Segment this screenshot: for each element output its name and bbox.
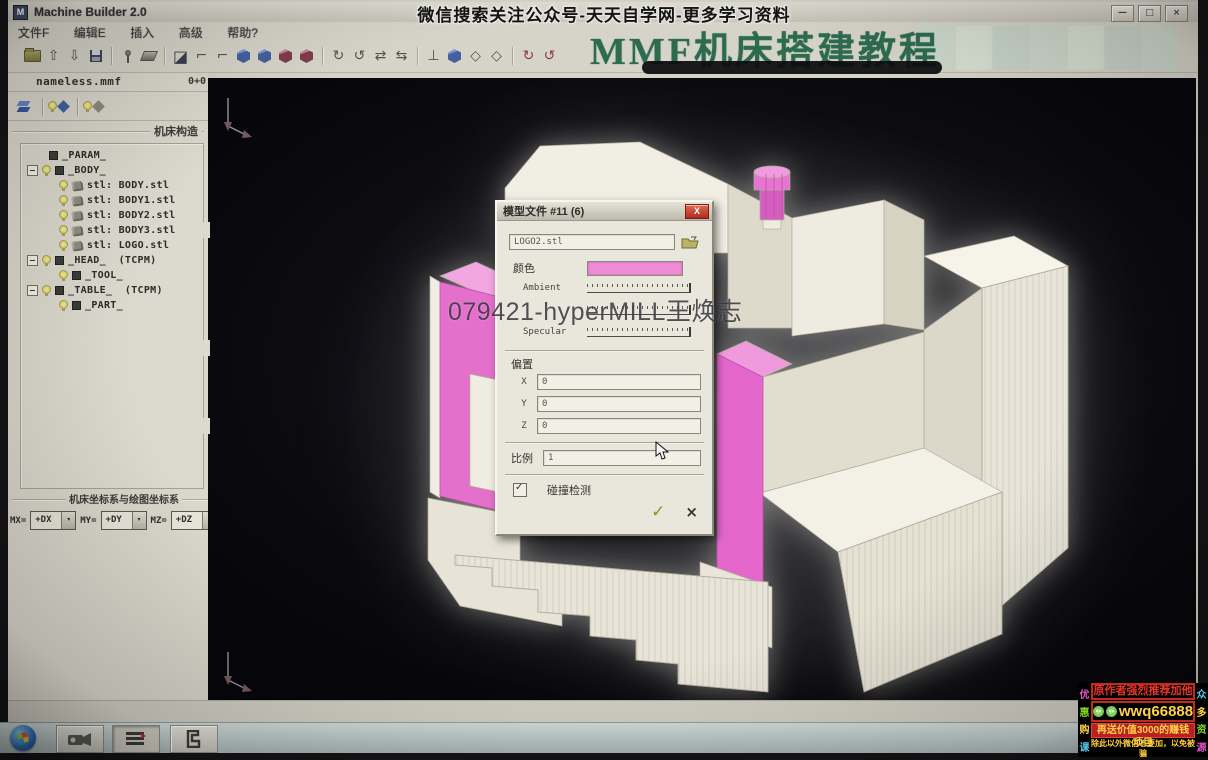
author-watermark: 079421-hyperMILL王焕志 [448, 292, 742, 328]
coords-group-label: 机床坐标系与绘图坐标系 [66, 491, 182, 506]
offset-y-label: Y [511, 399, 537, 409]
start-button[interactable] [10, 725, 36, 751]
blue-diamond-icon[interactable] [57, 100, 70, 113]
ad-wechat-id: wwq66888 [1119, 703, 1193, 720]
export-down-icon[interactable]: ⇩ [65, 47, 84, 66]
move-cube-x-icon[interactable] [234, 47, 253, 66]
mx-dropdown[interactable]: +DX ▾ [30, 511, 76, 530]
tree-item-label: _HEAD_ (TCPM) [68, 255, 157, 266]
tree-item-table[interactable]: _TABLE_ (TCPM) [21, 283, 203, 298]
save-icon[interactable] [86, 47, 105, 66]
file-row: nameless.mmf 0+0 [8, 73, 208, 92]
panel-edge-tab [197, 418, 210, 434]
ad-wechat-row: wwq66888 [1091, 701, 1195, 722]
visibility-bulb-icon[interactable] [59, 300, 68, 311]
chevron-down-icon[interactable]: ▾ [61, 512, 75, 529]
panel-toolbar-separator [77, 98, 78, 116]
offset-z-input[interactable]: 0 [537, 418, 701, 434]
wechat-icon [1106, 706, 1117, 717]
toolbar-separator [111, 47, 112, 65]
specular-label: Specular [523, 327, 587, 337]
node-icon [72, 301, 81, 310]
tree-item-stl[interactable]: stl: LOGO.stl [21, 238, 203, 253]
scale-input[interactable]: 1 [543, 450, 701, 466]
wechat-icon [1093, 706, 1104, 717]
wire-cube-b-icon[interactable]: ◇ [487, 47, 506, 66]
tree-item-tool[interactable]: _TOOL_ [21, 268, 203, 283]
dialog-close-button[interactable]: X [685, 204, 709, 219]
move-cube-z-icon[interactable] [276, 47, 295, 66]
current-file-name: nameless.mmf [36, 75, 121, 88]
taskbar-recorder-button[interactable] [56, 725, 104, 753]
move-cube-y-icon[interactable] [255, 47, 274, 66]
color-swatch[interactable] [587, 261, 683, 276]
panel-toolbar [8, 93, 208, 121]
layers-icon[interactable] [18, 100, 31, 113]
ad-line-1: 原作者强烈推荐加他 [1091, 683, 1195, 700]
offset-z-label: Z [511, 421, 537, 431]
offset-x-label: X [511, 377, 537, 387]
window-bottom-strip [8, 700, 1198, 723]
panel-edge-tab [197, 340, 210, 356]
windows-logo-icon [17, 732, 30, 745]
machine-structure-label: 机床构造 [150, 123, 202, 139]
tree-item-label: _PARAM_ [62, 150, 106, 161]
toolbar-separator [417, 47, 418, 65]
panel-toolbar-separator [42, 98, 43, 116]
ad-right-vertical-text: 众 多 资 源 [1195, 683, 1208, 757]
chevron-down-icon[interactable]: ▾ [132, 512, 146, 529]
open-folder-icon[interactable] [681, 235, 700, 250]
swap-y-icon[interactable]: ⇆ [392, 47, 411, 66]
ad-line-4: 除此以外微信不要加，以免被骗 [1091, 739, 1195, 759]
top-banner-watermark: 微信搜索关注公众号-天天自学网-更多学习资料 [0, 1, 1208, 26]
wechat-ad-overlay: 优 惠 购 课 原作者强烈推荐加他 wwq66888 再送价值3000的赚钱项目… [1078, 683, 1208, 757]
import-up-icon[interactable]: ⇧ [44, 47, 63, 66]
scale-label: 比例 [511, 450, 543, 466]
panel-edge-tab [197, 222, 210, 238]
perpendicular-icon[interactable]: ⊥ [424, 47, 443, 66]
axis-rotate-b-icon[interactable]: ↺ [540, 47, 559, 66]
tree-item-param[interactable]: _PARAM_ [21, 148, 203, 163]
offset-label: 偏置 [511, 356, 533, 372]
file-meta: 0+0 [188, 76, 206, 87]
tree-item-label: _BODY_ [68, 165, 106, 176]
visibility-bulb-icon[interactable] [59, 270, 68, 281]
collision-checkbox[interactable] [513, 483, 527, 497]
move-cube-w-icon[interactable] [297, 47, 316, 66]
my-label: MY= [80, 516, 96, 526]
mesh-icon [71, 210, 83, 221]
visibility-bulb-icon[interactable] [59, 225, 68, 236]
color-label: 颜色 [513, 260, 587, 276]
visibility-bulb-icon[interactable] [59, 210, 68, 221]
mz-label: MZ= [151, 516, 167, 526]
axis-triad-top-icon [222, 96, 258, 138]
tree-item-head[interactable]: _HEAD_ (TCPM) [21, 253, 203, 268]
toolbar-separator [164, 47, 165, 65]
mx-label: MX= [10, 516, 26, 526]
hide-all-bulb-icon[interactable] [83, 101, 92, 112]
axis-triad-bottom-icon [222, 650, 258, 692]
show-all-bulb-icon[interactable] [48, 101, 57, 112]
visibility-bulb-icon[interactable] [42, 165, 51, 176]
machine-tree: _PARAM_ _BODY_ stl: BODY.stl stl: BODY1 [20, 143, 204, 489]
node-icon [55, 256, 64, 265]
tree-item-stl[interactable]: stl: BODY1.stl [21, 193, 203, 208]
tree-item-label: _TABLE_ (TCPM) [68, 285, 163, 296]
visibility-bulb-icon[interactable] [59, 195, 68, 206]
model-file-dialog: 模型文件 #11 (6) X LOGO2.stl 颜色 Ambient Spec… [495, 200, 714, 536]
node-icon [55, 166, 64, 175]
cancel-button[interactable]: × [685, 504, 698, 521]
model-file-input[interactable]: LOGO2.stl [509, 234, 675, 250]
machine-tree-panel: nameless.mmf 0+0 机床构造 _PARAM_ [8, 73, 208, 700]
toolbar-separator [512, 47, 513, 65]
axis-rotate-a-icon[interactable]: ↻ [519, 47, 538, 66]
screen-photo: M Machine Builder 2.0 — □ × 文件F 编辑E 插入 高… [0, 0, 1208, 760]
open-file-icon[interactable] [23, 47, 42, 66]
censor-bar [642, 61, 942, 74]
mz-dropdown[interactable]: +DZ ▾ [171, 511, 208, 530]
offset-y-input[interactable]: 0 [537, 396, 701, 412]
blurred-censor-block [918, 26, 1176, 70]
visibility-bulb-icon[interactable] [42, 285, 51, 296]
my-dropdown[interactable]: +DY ▾ [101, 511, 147, 530]
visibility-bulb-icon[interactable] [59, 180, 68, 191]
ad-left-vertical-text: 优 惠 购 课 [1078, 683, 1091, 757]
tree-item-label: stl: LOGO.stl [87, 240, 169, 251]
dialog-titlebar[interactable]: 模型文件 #11 (6) X [497, 202, 712, 221]
node-icon [72, 271, 81, 280]
tree-item-label: stl: BODY1.stl [87, 195, 176, 206]
selected-cube-icon[interactable] [445, 47, 464, 66]
axis-mapping-row: MX= +DX ▾ MY= +DY ▾ MZ= +DZ ▾ [10, 511, 208, 530]
mesh-icon [71, 195, 83, 206]
mouse-cursor [655, 441, 669, 461]
pin-icon[interactable] [118, 47, 137, 66]
ad-line-3: 再送价值3000的赚钱项目 [1091, 723, 1195, 738]
swap-x-icon[interactable]: ⇄ [371, 47, 390, 66]
taskbar [0, 722, 1208, 753]
wire-cube-a-icon[interactable]: ◇ [466, 47, 485, 66]
rotate-ccw-icon[interactable]: ↺ [350, 47, 369, 66]
mesh-icon [71, 225, 83, 236]
node-icon [55, 286, 64, 295]
collapse-icon[interactable] [27, 165, 38, 176]
dialog-title: 模型文件 #11 (6) [497, 203, 685, 219]
mesh-icon [71, 240, 83, 251]
collapse-icon[interactable] [27, 255, 38, 266]
collision-label: 碰撞检测 [547, 482, 591, 498]
tree-item-part[interactable]: _PART_ [21, 298, 203, 313]
tree-item-body[interactable]: _BODY_ [21, 163, 203, 178]
tree-item-label: _PART_ [85, 300, 123, 311]
corner-b-icon[interactable]: ⌐ [213, 47, 232, 66]
tree-item-stl[interactable]: stl: BODY2.stl [21, 208, 203, 223]
toolbar-separator [322, 47, 323, 65]
mesh-icon [71, 180, 83, 191]
corner-a-icon[interactable]: ⌐ [192, 47, 211, 66]
ok-button[interactable]: ✓ [651, 504, 665, 521]
list-icon [125, 731, 147, 747]
gray-diamond-icon[interactable] [92, 100, 105, 113]
tree-item-label: stl: BODY3.stl [87, 225, 176, 236]
rotate-cw-icon[interactable]: ↻ [329, 47, 348, 66]
tree-item-label: _TOOL_ [85, 270, 123, 281]
collapse-icon[interactable] [27, 285, 38, 296]
offset-x-input[interactable]: 0 [537, 374, 701, 390]
eraser-icon[interactable] [139, 47, 158, 66]
coords-group: 机床坐标系与绘图坐标系 [8, 491, 208, 507]
tree-item-label: stl: BODY2.stl [87, 210, 176, 221]
machine-structure-group: 机床构造 [8, 123, 208, 139]
camcorder-icon [67, 731, 93, 747]
tree-item-stl[interactable]: stl: BODY.stl [21, 178, 203, 193]
visibility-bulb-icon[interactable] [42, 255, 51, 266]
node-icon [49, 151, 58, 160]
tree-item-stl[interactable]: stl: BODY3.stl [21, 223, 203, 238]
taskbar-machine-button[interactable] [170, 725, 218, 753]
transform-cube-icon[interactable]: ◪ [171, 47, 190, 66]
tree-item-label: stl: BODY.stl [87, 180, 169, 191]
machine-icon [184, 730, 204, 748]
taskbar-list-button[interactable] [112, 725, 160, 753]
visibility-bulb-icon[interactable] [59, 240, 68, 251]
